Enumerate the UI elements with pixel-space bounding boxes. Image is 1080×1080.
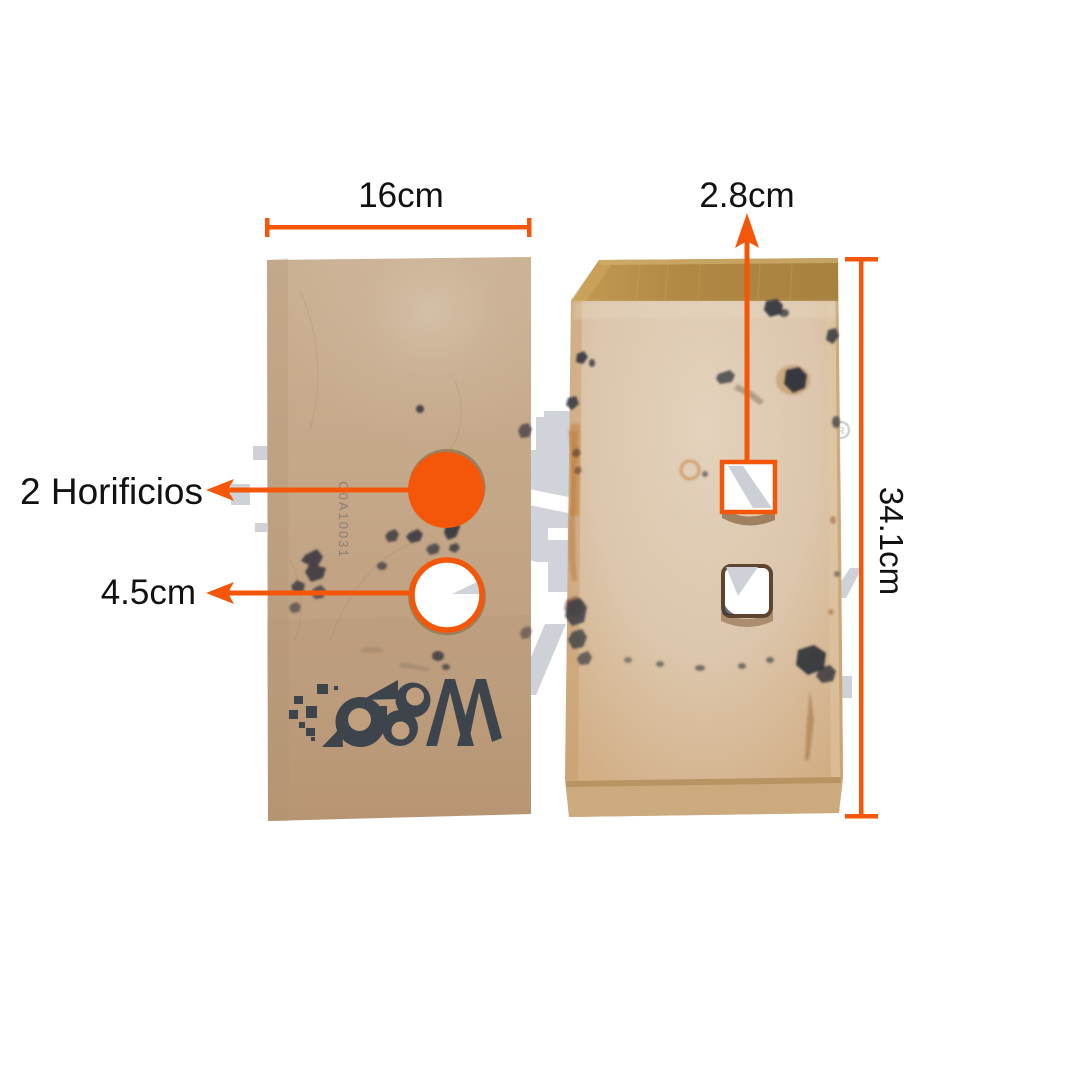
svg-text:2 Horificios: 2 Horificios (20, 471, 203, 512)
svg-text:2.8cm: 2.8cm (699, 176, 794, 215)
svg-text:34.1cm: 34.1cm (873, 487, 910, 595)
svg-text:C0A10031: C0A10031 (336, 481, 351, 558)
svg-text:4.5cm: 4.5cm (101, 573, 196, 612)
svg-text:16cm: 16cm (358, 176, 444, 215)
